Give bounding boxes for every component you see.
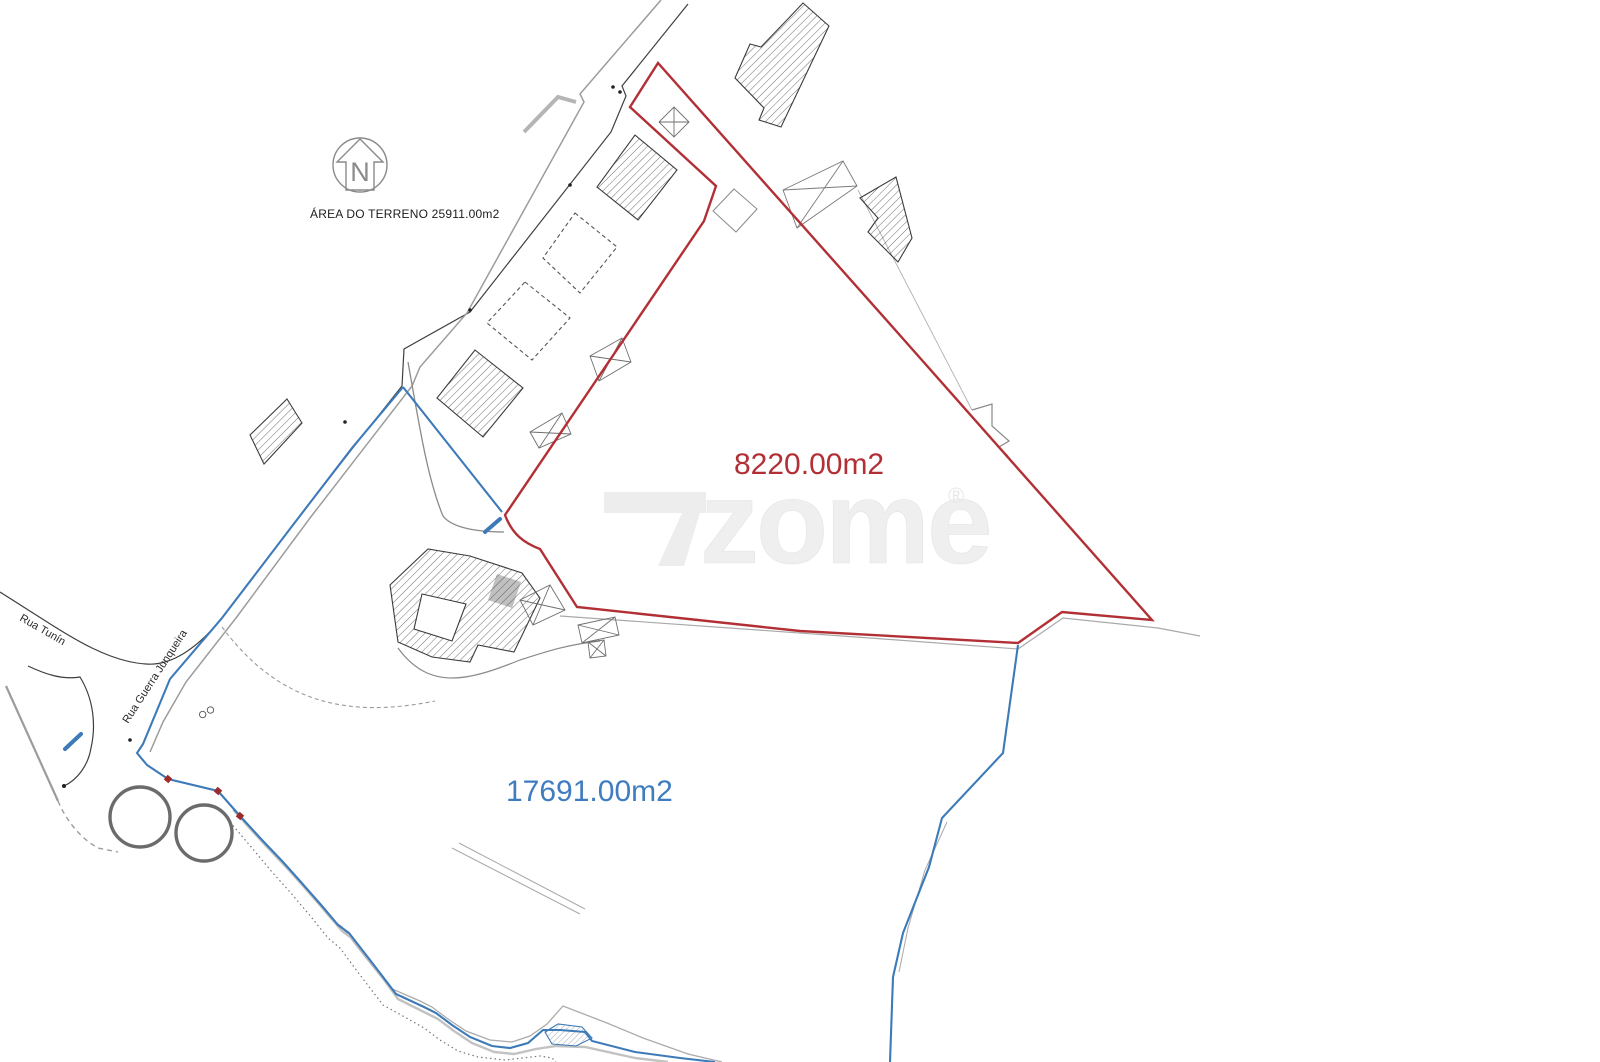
street-label-rua-guerra-junqueira: Rua Guerra Junqueira [120,627,190,726]
blue-boundary-east [890,645,1018,1062]
road-left-curve-dashed [58,801,118,852]
tanks [110,787,232,861]
trail-double-2 [459,843,585,909]
road-left-edge [6,686,58,801]
boundary-gray-lower [560,616,1200,649]
curb-mark [524,97,576,132]
building-dashed-row-2 [543,213,617,293]
road-edge-dark [0,4,688,664]
boundary-gray-right [899,822,947,972]
double-circle-symbol [198,706,215,719]
roads [0,0,1200,972]
building-dashed-row-3 [487,282,570,360]
red-parcel-area-label: 8220.00m2 [734,448,884,481]
main-house-hatched [390,549,540,662]
diamond-cross-symbol [659,107,689,137]
building-hatched-right [860,177,912,262]
stream [230,810,722,1062]
blue-gate-tick-1 [485,519,500,532]
north-symbol: N [333,138,387,192]
watermark-logo-bar [604,492,706,513]
building-hatched-topright [735,3,829,127]
cross-box-symbol-2 [530,413,571,448]
site-plan-page: zome ® [0,0,1600,1062]
building-hatched-left [250,399,302,464]
stream-island [545,1024,592,1046]
site-plan-drawing: zome ® [0,0,1600,1062]
blue-parcel-area-label: 17691.00m2 [506,775,673,808]
cross-box-symbol-4 [578,617,619,643]
fence-zigzag [972,404,1009,456]
watermark-registered-icon: ® [948,483,964,508]
plot-white-square [713,189,757,232]
blue-gate-tick-2 [65,734,81,749]
building-hatched-row-1 [597,135,677,220]
building-hatched-row-4 [437,350,523,437]
total-area-label: ÁREA DO TERRENO 25911.00m2 [310,206,500,221]
trail-double-1 [452,848,580,914]
tank-circle-1 [110,787,170,847]
tank-circle-2 [176,805,232,861]
north-letter: N [350,157,370,187]
driveway-loop [28,666,93,786]
stream-bank-lower [244,822,668,1062]
stream-bank-upper [233,810,722,1062]
